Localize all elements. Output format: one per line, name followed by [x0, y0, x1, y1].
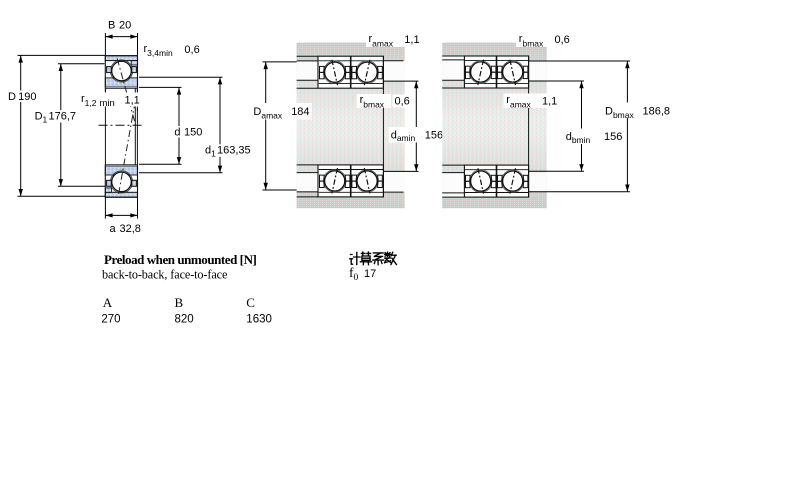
svg-text:32,8: 32,8	[120, 223, 141, 235]
svg-text:C: C	[246, 295, 255, 310]
svg-text:186,8: 186,8	[643, 105, 671, 117]
svg-text:156: 156	[604, 131, 622, 143]
svg-text:0,6: 0,6	[184, 44, 199, 56]
svg-text:1630: 1630	[246, 313, 272, 325]
svg-text:0,6: 0,6	[395, 95, 410, 107]
svg-text:a: a	[110, 223, 117, 235]
svg-text:A: A	[103, 295, 113, 310]
svg-text:d: d	[174, 126, 180, 138]
svg-text:B: B	[175, 295, 184, 310]
svg-text:20: 20	[119, 19, 131, 31]
svg-text:156: 156	[425, 129, 443, 141]
svg-text:1,1: 1,1	[404, 34, 419, 46]
svg-text:150: 150	[184, 126, 202, 138]
svg-text:176,7: 176,7	[49, 110, 77, 122]
svg-text:1,1: 1,1	[125, 94, 140, 106]
svg-text:0,6: 0,6	[555, 34, 570, 46]
svg-text:163,35: 163,35	[217, 145, 251, 157]
svg-text:back-to-back, face-to-face: back-to-back, face-to-face	[102, 267, 227, 281]
svg-text:D: D	[8, 91, 16, 103]
svg-text:1,1: 1,1	[542, 95, 557, 107]
svg-text:17: 17	[364, 268, 376, 280]
svg-text:270: 270	[101, 313, 120, 325]
svg-text:190: 190	[18, 91, 36, 103]
svg-text:820: 820	[175, 313, 194, 325]
svg-text:184: 184	[291, 106, 309, 118]
svg-text:B: B	[108, 19, 115, 31]
svg-text:Preload when unmounted [N]: Preload when unmounted [N]	[104, 252, 257, 267]
